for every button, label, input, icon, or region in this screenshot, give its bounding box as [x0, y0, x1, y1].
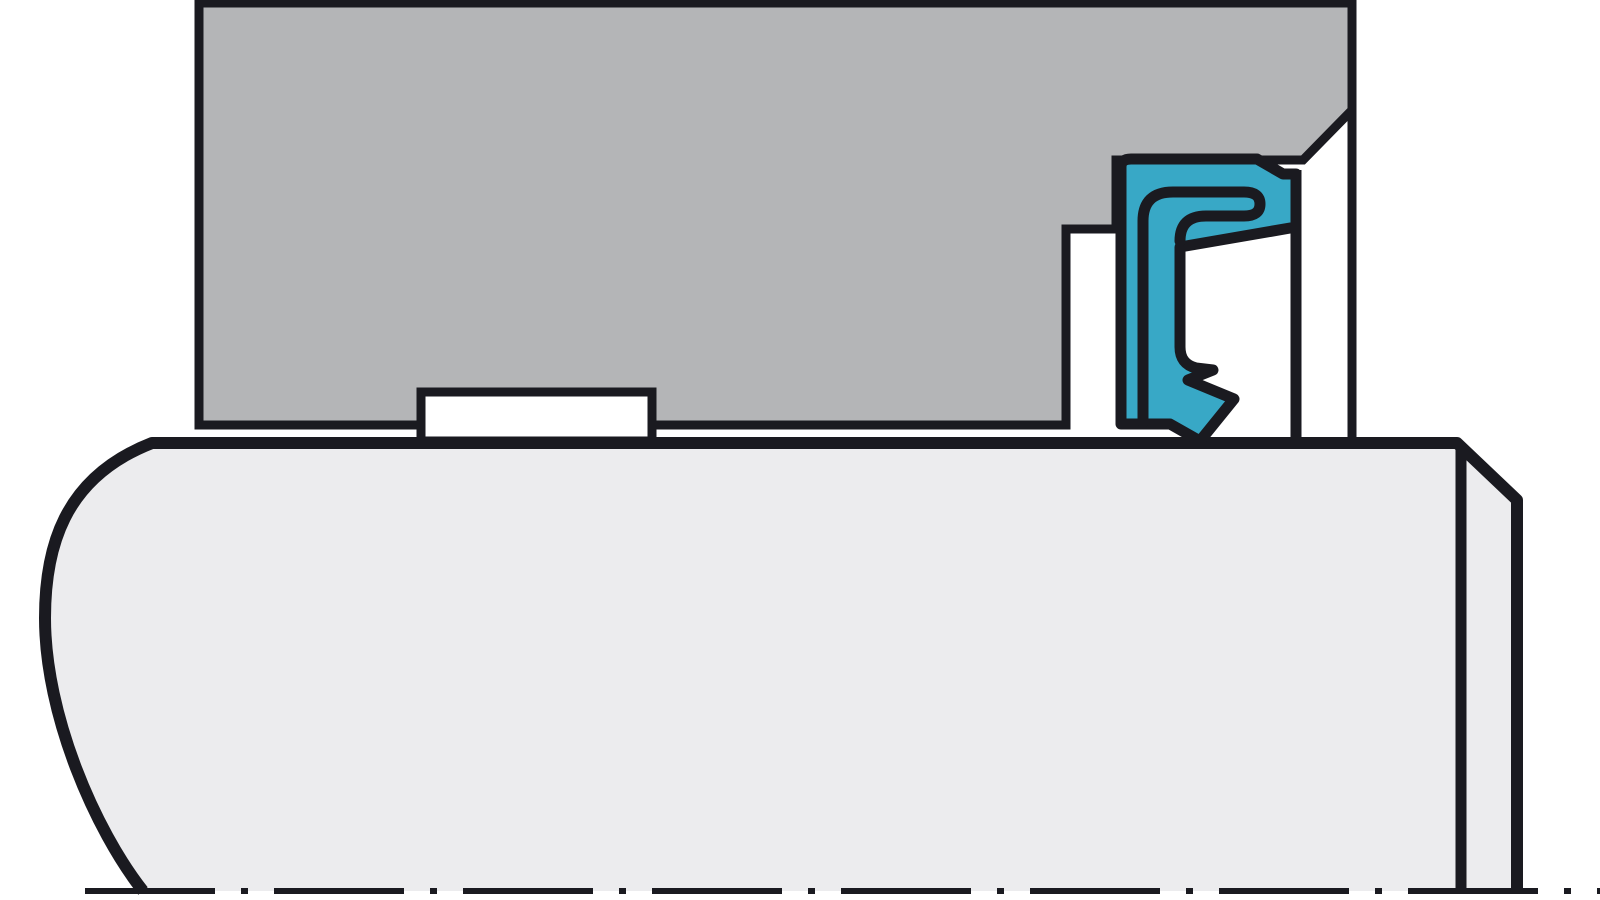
diagram-canvas: [0, 0, 1600, 900]
seal-cross-section-diagram: [0, 0, 1600, 900]
shaft-fill: [45, 443, 1517, 891]
housing-groove-notch: [421, 392, 652, 441]
